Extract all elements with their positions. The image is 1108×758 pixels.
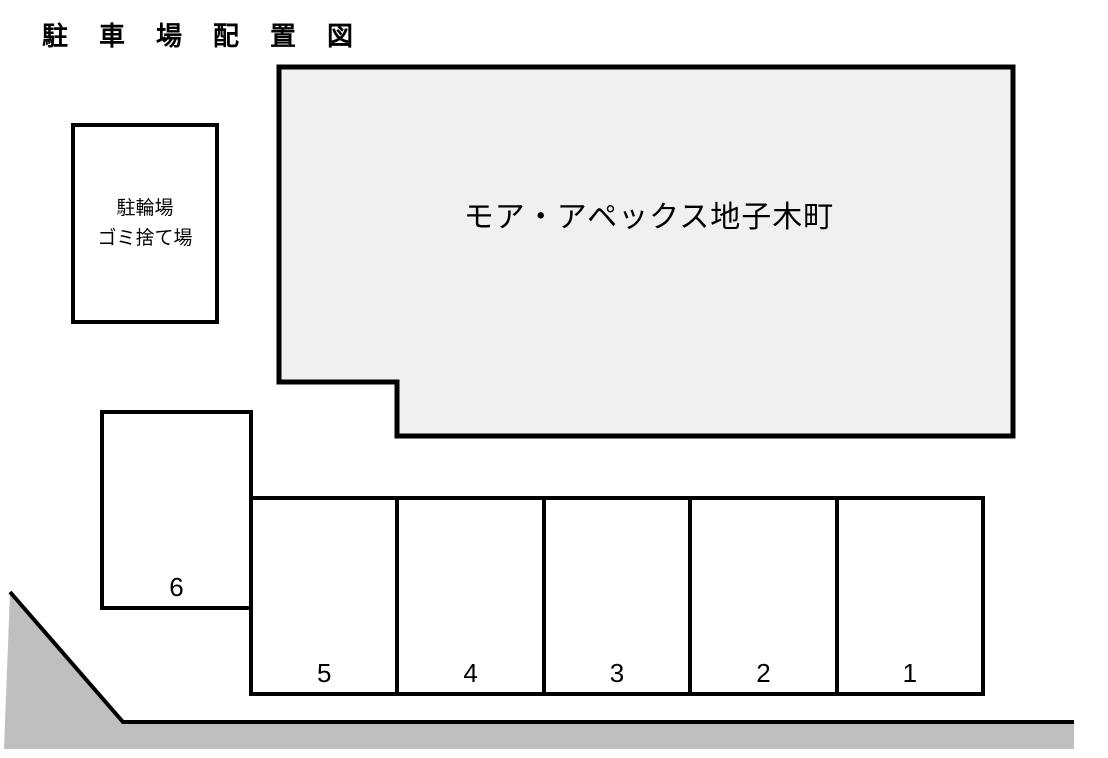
building-name-label: モア・アペックス地子木町 [399,201,899,235]
parking-space-4-label: 4 [463,660,477,686]
facility-label-line2: ゴミ捨て場 [97,224,192,254]
parking-space-2-label: 2 [756,660,770,686]
parking-space-3: 3 [546,500,692,692]
parking-space-2: 2 [692,500,838,692]
parking-space-4: 4 [399,500,545,692]
parking-space-5-label: 5 [317,660,331,686]
parking-space-6-label: 6 [169,574,183,600]
building-shape [279,67,1013,436]
facility-label-line1: 駐輪場 [116,194,173,224]
parking-space-6: 6 [100,410,253,610]
parking-space-1: 1 [839,500,981,692]
parking-space-5: 5 [253,500,399,692]
parking-space-1-label: 1 [903,660,917,686]
facility-box: 駐輪場 ゴミ捨て場 [71,123,219,324]
page-title: 駐車場配置図 [42,21,384,51]
parking-row: 5 4 3 2 1 [249,496,985,696]
parking-space-3-label: 3 [610,660,624,686]
